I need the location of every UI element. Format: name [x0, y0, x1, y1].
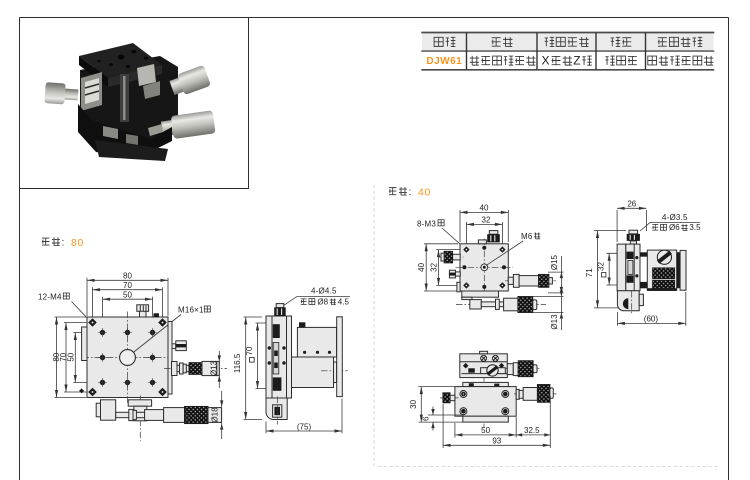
svg-text:DJW61: DJW61 [426, 56, 462, 67]
svg-text:32.5: 32.5 [524, 426, 540, 435]
svg-text:12-M4: 12-M4 [38, 293, 62, 302]
svg-text:70: 70 [245, 346, 254, 355]
svg-text:80: 80 [123, 272, 132, 281]
svg-text:Ø13: Ø13 [209, 360, 218, 376]
svg-text:8-M3: 8-M3 [417, 219, 436, 228]
svg-text:Z: Z [573, 53, 580, 67]
svg-text:4-Ø4.5: 4-Ø4.5 [311, 286, 337, 295]
svg-text:40: 40 [480, 204, 489, 213]
svg-text:50: 50 [66, 352, 75, 361]
svg-text:M16×1: M16×1 [178, 306, 204, 315]
svg-text:X: X [542, 53, 550, 67]
svg-text:(60): (60) [644, 315, 659, 324]
svg-text:32: 32 [597, 262, 606, 271]
svg-text:4.5: 4.5 [338, 297, 350, 306]
svg-text:116.5: 116.5 [233, 353, 242, 373]
svg-text:Ø13: Ø13 [550, 314, 559, 330]
svg-text:93: 93 [492, 437, 501, 446]
svg-text:3.5: 3.5 [689, 223, 701, 232]
svg-text:71: 71 [585, 268, 594, 277]
svg-text::: : [409, 186, 412, 198]
svg-text:Ø18: Ø18 [210, 407, 219, 423]
svg-text:40: 40 [418, 186, 431, 198]
svg-text:70: 70 [123, 281, 132, 290]
svg-text:(75): (75) [297, 422, 312, 431]
svg-text:Ø8: Ø8 [317, 297, 328, 306]
svg-text:M6: M6 [521, 232, 533, 241]
svg-text:30: 30 [409, 399, 418, 408]
svg-text:4-Ø3.5: 4-Ø3.5 [662, 213, 688, 222]
svg-text:80: 80 [71, 237, 84, 249]
svg-text:40: 40 [417, 262, 426, 271]
svg-text:Ø15: Ø15 [550, 254, 559, 270]
svg-text:32: 32 [430, 262, 439, 271]
svg-text:Ø6: Ø6 [669, 223, 680, 232]
svg-text::: : [62, 237, 65, 249]
svg-text:50: 50 [123, 291, 132, 300]
svg-text:50: 50 [481, 426, 490, 435]
svg-text:6: 6 [422, 416, 431, 421]
svg-text:26: 26 [627, 200, 636, 209]
svg-text:32: 32 [482, 216, 491, 225]
